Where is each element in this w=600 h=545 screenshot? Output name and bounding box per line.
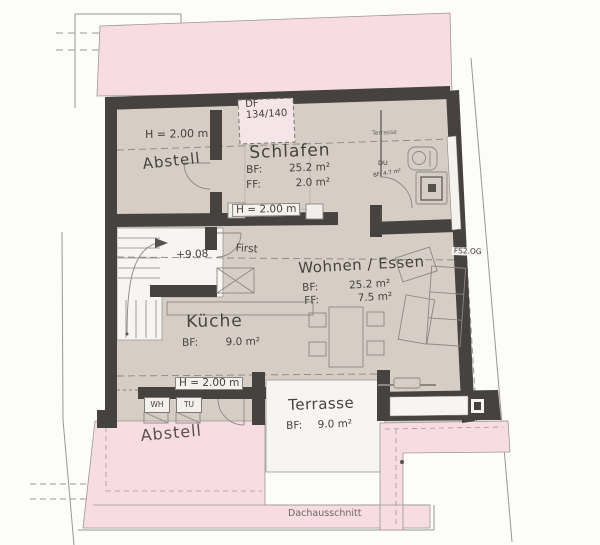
ridge-label: First bbox=[235, 243, 258, 256]
window-box-small bbox=[471, 399, 484, 413]
wohnen-bf-label: BF: bbox=[302, 282, 319, 294]
wall-hall bbox=[117, 212, 338, 227]
height-label-mid: H = 2.00 m bbox=[232, 203, 301, 217]
schlafen-bf-value: 25.2 m² bbox=[289, 162, 331, 174]
wall-stair-bottom bbox=[150, 285, 217, 297]
wohnen-ff-value: 7.5 m² bbox=[357, 291, 392, 304]
terrasse-bf-label: BF: bbox=[286, 420, 302, 432]
ref-label: FS2.OG bbox=[452, 247, 484, 256]
room-label-dusche: DU bbox=[378, 160, 388, 167]
terrasse-bf-row: BF: 9.0 m² bbox=[286, 419, 352, 432]
height-label-top: H = 2.00 m bbox=[145, 128, 208, 141]
roof-area-bottom-right bbox=[380, 421, 510, 530]
terrasse-bf-value: 9.0 m² bbox=[317, 419, 352, 431]
kueche-bf-value: 9.0 m² bbox=[226, 337, 261, 349]
wall-abstell-partition bbox=[210, 110, 222, 160]
wall-corner-stub bbox=[97, 410, 117, 428]
dryer-box: TU bbox=[176, 397, 202, 413]
survey-point-icon bbox=[400, 460, 404, 464]
schlafen-bf-label: BF: bbox=[246, 164, 262, 176]
floorplan-page: DF 134/140 H = 2.00 m Abstell Schlafen B… bbox=[0, 0, 600, 545]
wall-left bbox=[105, 103, 117, 428]
roof-area-top bbox=[97, 13, 452, 96]
room-label-schlafen: Schlafen bbox=[249, 142, 331, 163]
wall-terrasse-right bbox=[377, 370, 390, 393]
stair-walkline-start bbox=[126, 333, 129, 336]
roof-window-label: DF 134/140 bbox=[245, 98, 288, 121]
room-label-kueche: Küche bbox=[186, 313, 243, 332]
level-marker: +9.08 bbox=[176, 249, 209, 261]
schlafen-ff-label: FF: bbox=[246, 179, 261, 191]
kueche-bf-row: BF: 9.0 m² bbox=[182, 337, 260, 349]
window-bottom-right bbox=[390, 396, 468, 416]
height-label-bottom: H = 2.00 m bbox=[175, 377, 243, 390]
wall-stair-right bbox=[205, 227, 217, 250]
washer-box: WH bbox=[144, 397, 170, 413]
cabinet-symbol bbox=[306, 204, 323, 219]
wall-terrasse-left bbox=[252, 372, 265, 425]
kueche-bf-label: BF: bbox=[182, 338, 198, 349]
wohnen-bf-value: 25.2 m² bbox=[349, 278, 391, 291]
room-label-terrasse: Terrasse bbox=[288, 396, 354, 414]
roof-window-size: 134/140 bbox=[246, 108, 288, 121]
terrasse-small-label: Terrasse bbox=[372, 130, 397, 138]
schlafen-ff-value: 2.0 m² bbox=[295, 177, 330, 189]
wohnen-ff-label: FF: bbox=[304, 295, 319, 307]
dachausschnitt-label: Dachausschnitt bbox=[288, 509, 361, 519]
